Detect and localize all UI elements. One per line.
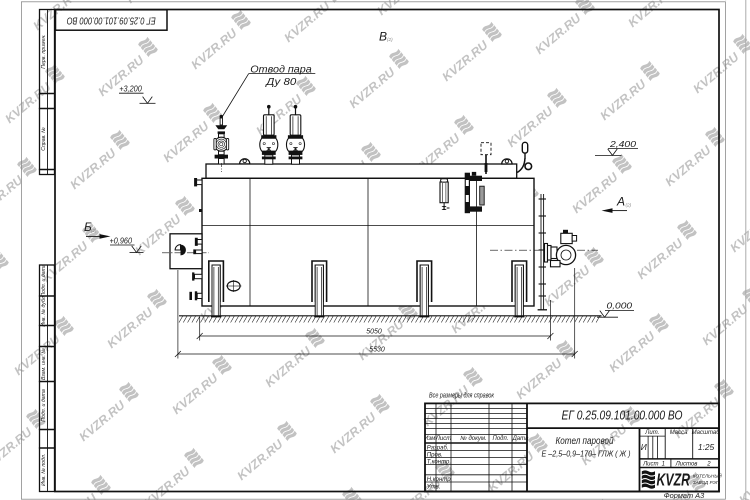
svg-text:Все размеры для справок: Все размеры для справок — [429, 391, 494, 400]
svg-text:(2): (2) — [91, 228, 97, 233]
svg-text:Справ. №: Справ. № — [41, 127, 47, 151]
svg-text:Н.контр.: Н.контр. — [427, 477, 452, 483]
svg-text:Лист: Лист — [642, 462, 658, 468]
svg-text:Взам. инв. №: Взам. инв. № — [41, 348, 47, 380]
svg-text:ЕГ 0.25.09.101.00.000 ВО: ЕГ 0.25.09.101.00.000 ВО — [67, 15, 156, 26]
svg-text:(2): (2) — [387, 37, 393, 42]
svg-text:Разраб.: Разраб. — [427, 445, 449, 451]
svg-text:5530: 5530 — [369, 347, 385, 354]
svg-text:Пров.: Пров. — [427, 452, 443, 458]
svg-text:1:25: 1:25 — [698, 442, 715, 452]
svg-text:+0,960: +0,960 — [110, 236, 133, 246]
svg-text:Перв. примен.: Перв. примен. — [41, 34, 47, 68]
svg-text:Ду 80: Ду 80 — [265, 77, 297, 88]
svg-text:Утв.: Утв. — [426, 484, 441, 490]
svg-text:Лист: Лист — [435, 436, 451, 442]
svg-text:5050: 5050 — [366, 329, 382, 336]
svg-text:Формат А3: Формат А3 — [664, 491, 705, 500]
svg-text:Масса: Масса — [670, 430, 688, 436]
svg-text:2: 2 — [706, 462, 711, 468]
svg-text:Инв. № подл.: Инв. № подл. — [41, 454, 47, 486]
svg-text:А: А — [616, 195, 625, 209]
svg-text:Подп. и дата: Подп. и дата — [41, 264, 47, 297]
svg-text:Дата: Дата — [512, 436, 529, 442]
svg-text:ЕГ 0.25.09.101.00.000 ВО: ЕГ 0.25.09.101.00.000 ВО — [562, 408, 683, 423]
svg-text:Подп. и дата: Подп. и дата — [41, 389, 47, 422]
svg-text:Е –2,5–0,9–170– ГЛЖ ( Ж ): Е –2,5–0,9–170– ГЛЖ ( Ж ) — [542, 449, 631, 459]
svg-text:0,000: 0,000 — [607, 301, 633, 311]
svg-text:Т.контр.: Т.контр. — [427, 459, 451, 465]
svg-text:KVZR: KVZR — [657, 469, 691, 489]
svg-text:ЗАВОД РЭП: ЗАВОД РЭП — [693, 480, 720, 485]
svg-text:(2): (2) — [626, 203, 632, 208]
svg-text:2,400: 2,400 — [609, 139, 636, 149]
svg-text:Подп.: Подп. — [493, 436, 509, 442]
svg-text:Котел паровой: Котел паровой — [556, 436, 614, 447]
svg-text:Масштаб: Масштаб — [692, 430, 721, 436]
svg-text:1: 1 — [662, 462, 665, 468]
svg-text:+3,200: +3,200 — [119, 84, 142, 94]
svg-text:Инв. № дубл.: Инв. № дубл. — [41, 295, 47, 327]
svg-text:И: И — [641, 442, 647, 452]
svg-text:№ докум.: № докум. — [460, 435, 486, 442]
svg-text:КОТЕЛЬНЫЙ: КОТЕЛЬНЫЙ — [693, 472, 723, 479]
svg-text:В: В — [379, 30, 387, 44]
svg-text:Листов: Листов — [675, 462, 698, 468]
svg-text:Лит.: Лит. — [644, 430, 659, 436]
